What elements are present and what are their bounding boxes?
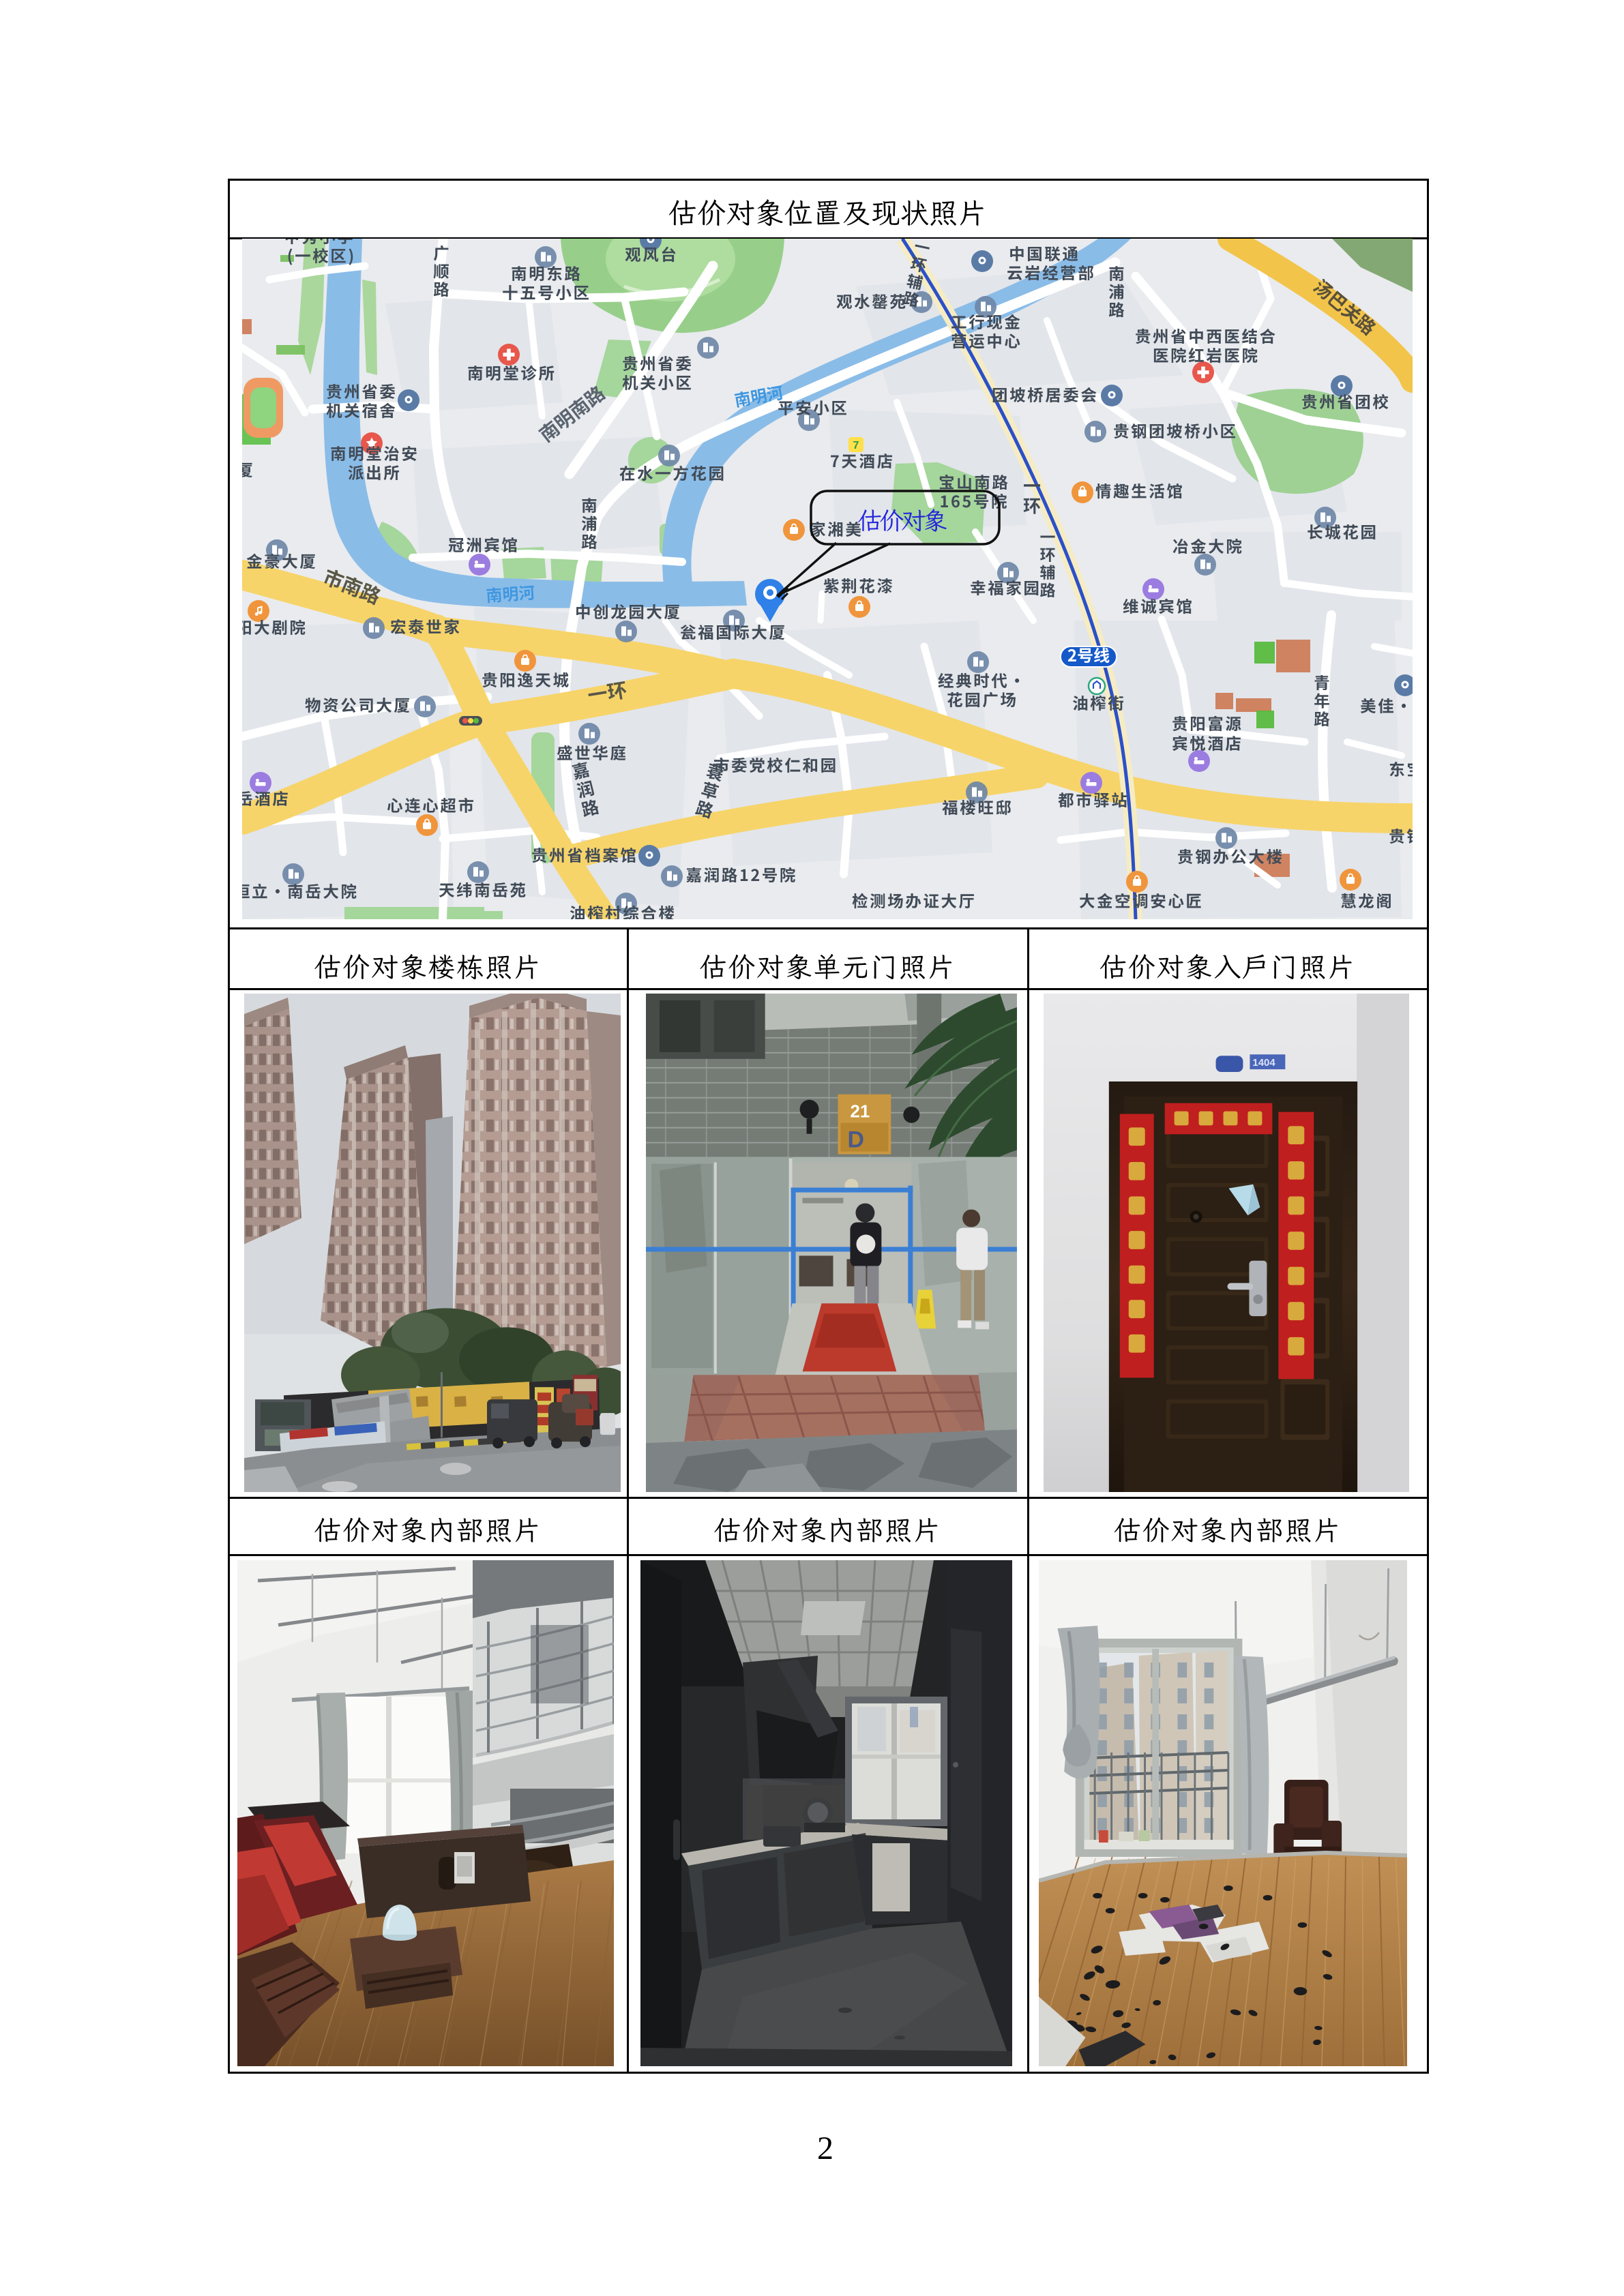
svg-text:7: 7	[853, 440, 859, 451]
svg-text:1404: 1404	[1252, 1057, 1275, 1069]
svg-text:2: 2	[817, 2130, 833, 2166]
svg-text:21: 21	[850, 1103, 870, 1122]
svg-text:D: D	[847, 1127, 864, 1153]
